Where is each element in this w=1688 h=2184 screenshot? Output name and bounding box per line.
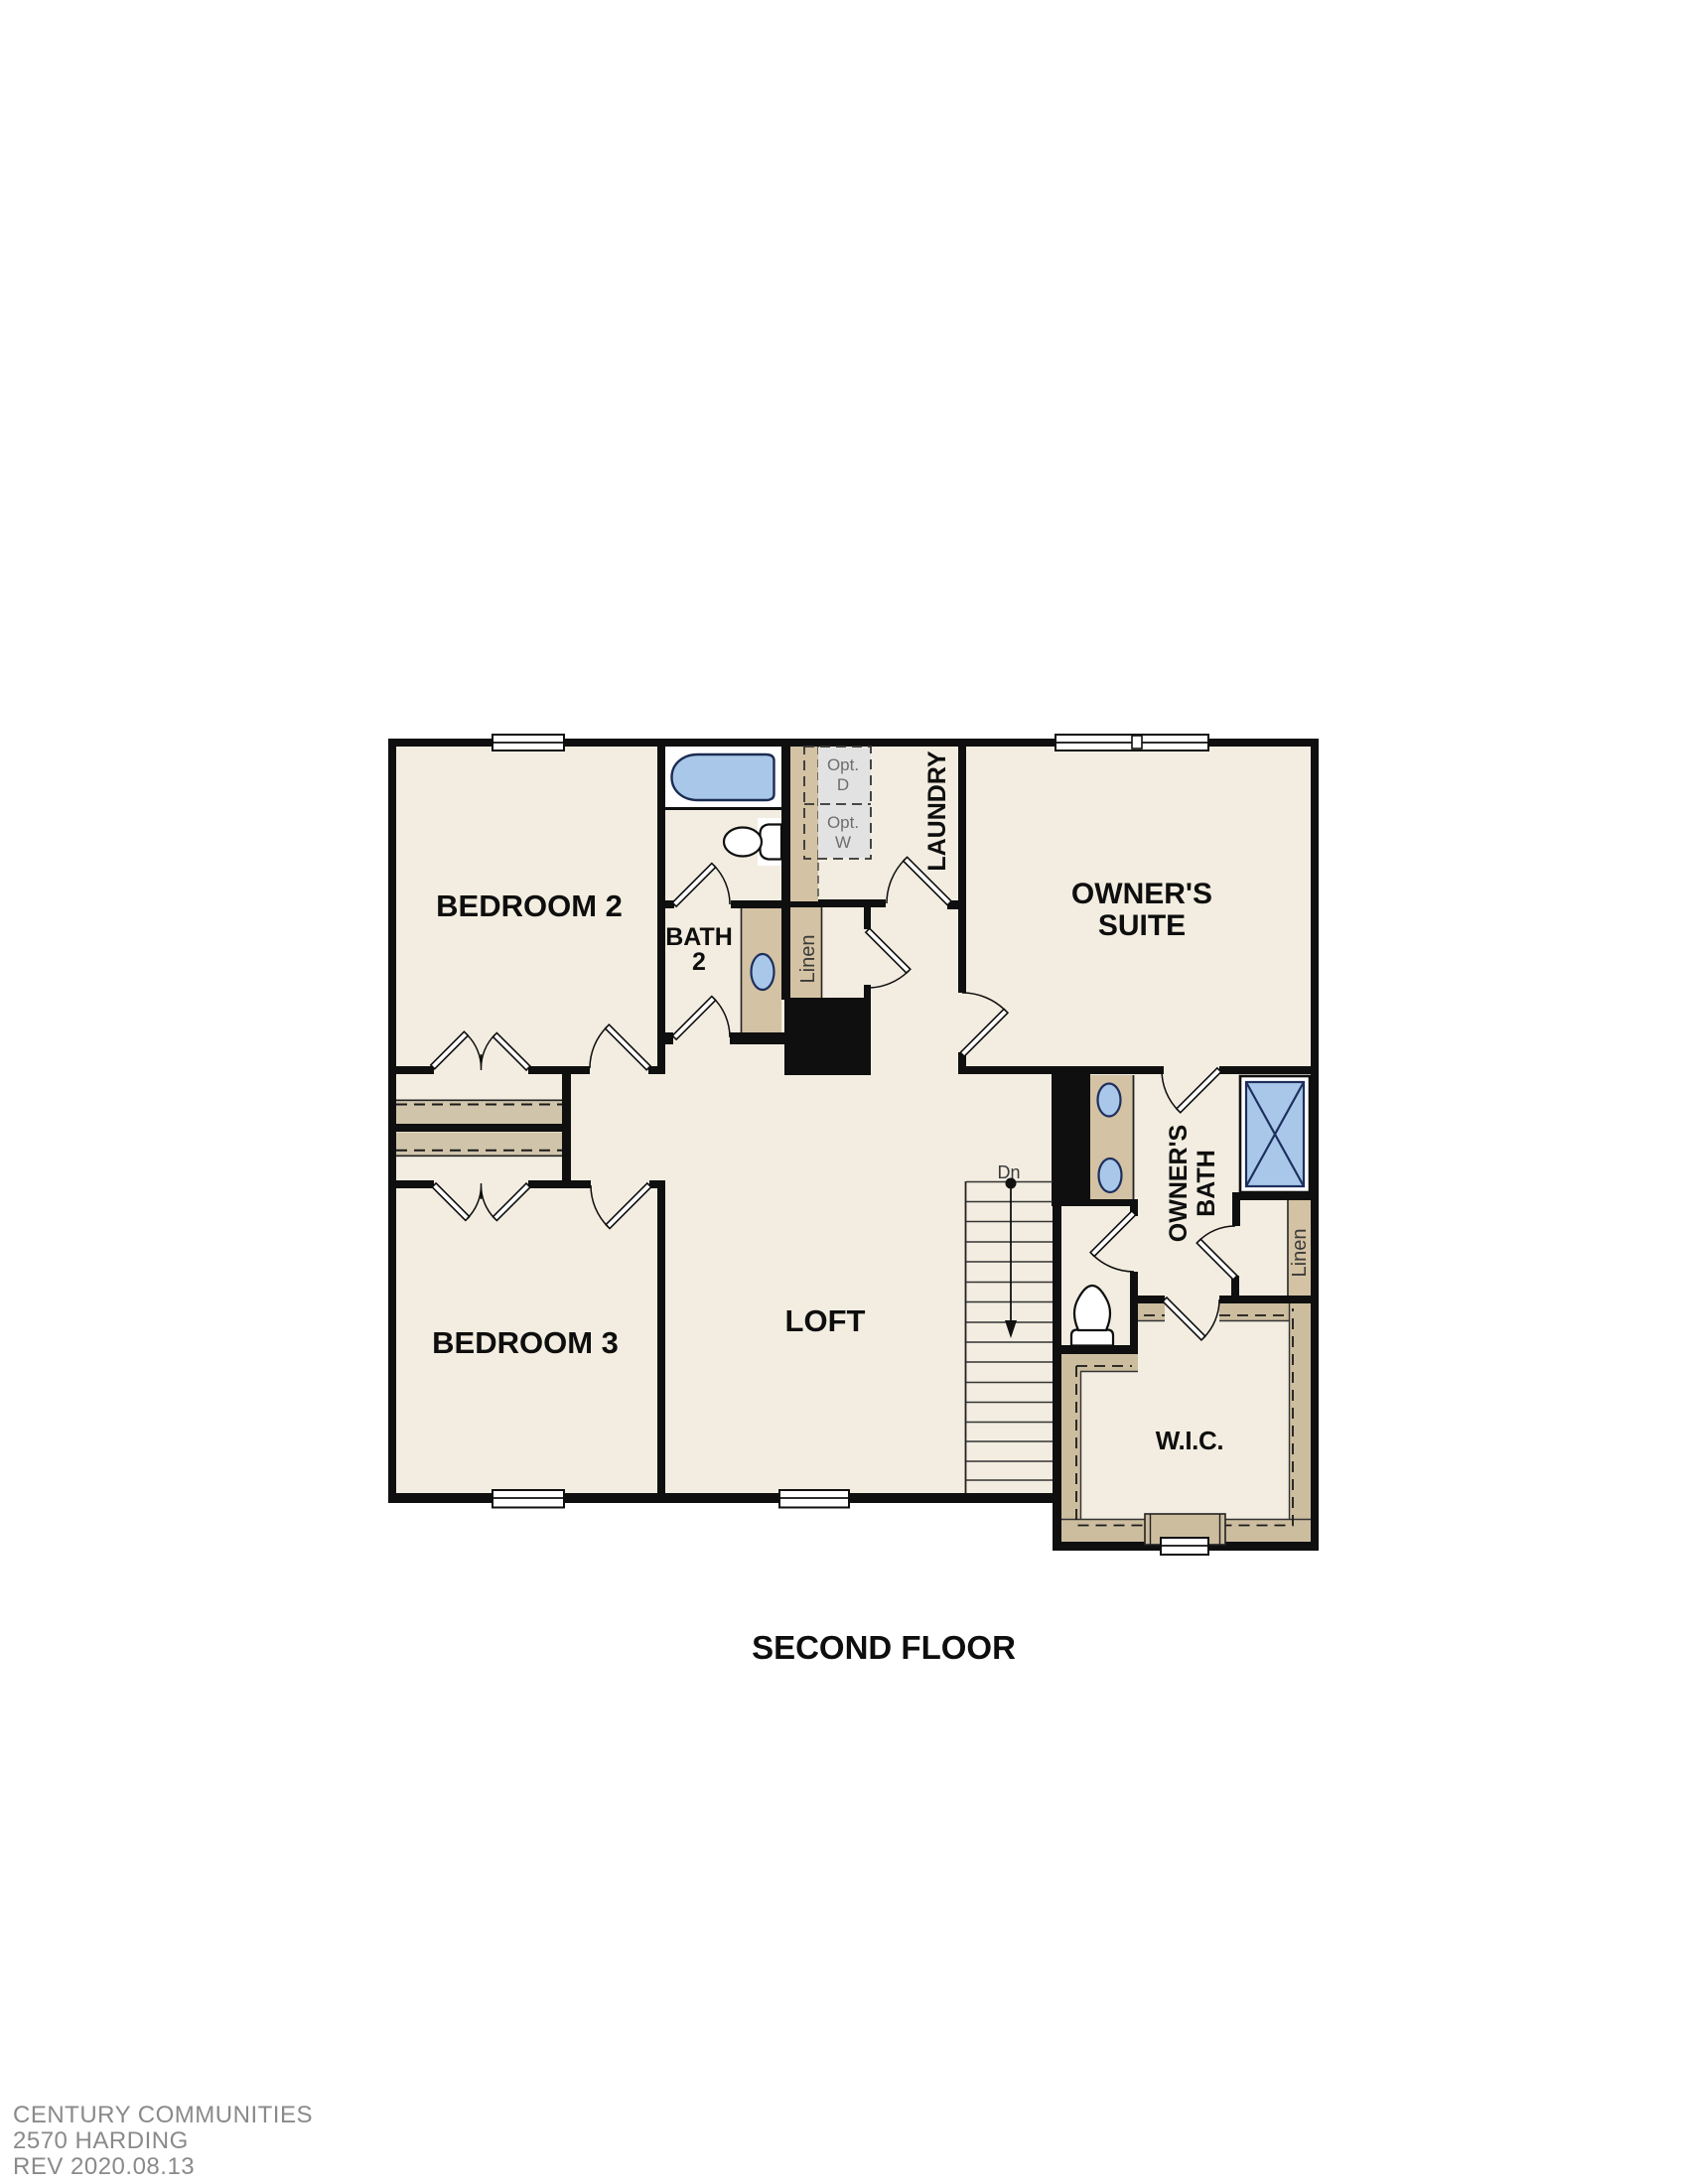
svg-text:Opt.: Opt. (827, 813, 859, 832)
svg-text:D: D (837, 775, 849, 794)
svg-text:SECOND FLOOR: SECOND FLOOR (752, 1629, 1016, 1666)
svg-text:2570 HARDING: 2570 HARDING (13, 2127, 189, 2154)
svg-text:Opt.: Opt. (827, 755, 859, 774)
svg-text:REV 2020.08.13: REV 2020.08.13 (13, 2153, 195, 2180)
svg-text:Linen: Linen (1289, 1229, 1311, 1278)
svg-text:LAUNDRY: LAUNDRY (923, 751, 951, 872)
svg-text:SUITE: SUITE (1098, 909, 1186, 942)
svg-text:BEDROOM 3: BEDROOM 3 (432, 1325, 619, 1360)
svg-text:CENTURY COMMUNITIES: CENTURY COMMUNITIES (13, 2102, 313, 2128)
svg-text:2: 2 (692, 948, 706, 976)
svg-text:W.I.C.: W.I.C. (1156, 1426, 1223, 1455)
svg-text:Linen: Linen (797, 935, 819, 984)
svg-text:Dn: Dn (997, 1162, 1020, 1182)
svg-text:W: W (835, 833, 851, 852)
svg-text:OWNER'S: OWNER'S (1165, 1125, 1193, 1242)
svg-text:BATH: BATH (1193, 1150, 1220, 1217)
svg-text:BATH: BATH (665, 923, 733, 951)
svg-text:LOFT: LOFT (785, 1303, 866, 1338)
svg-text:OWNER'S: OWNER'S (1071, 878, 1212, 910)
svg-text:BEDROOM 2: BEDROOM 2 (436, 888, 623, 923)
